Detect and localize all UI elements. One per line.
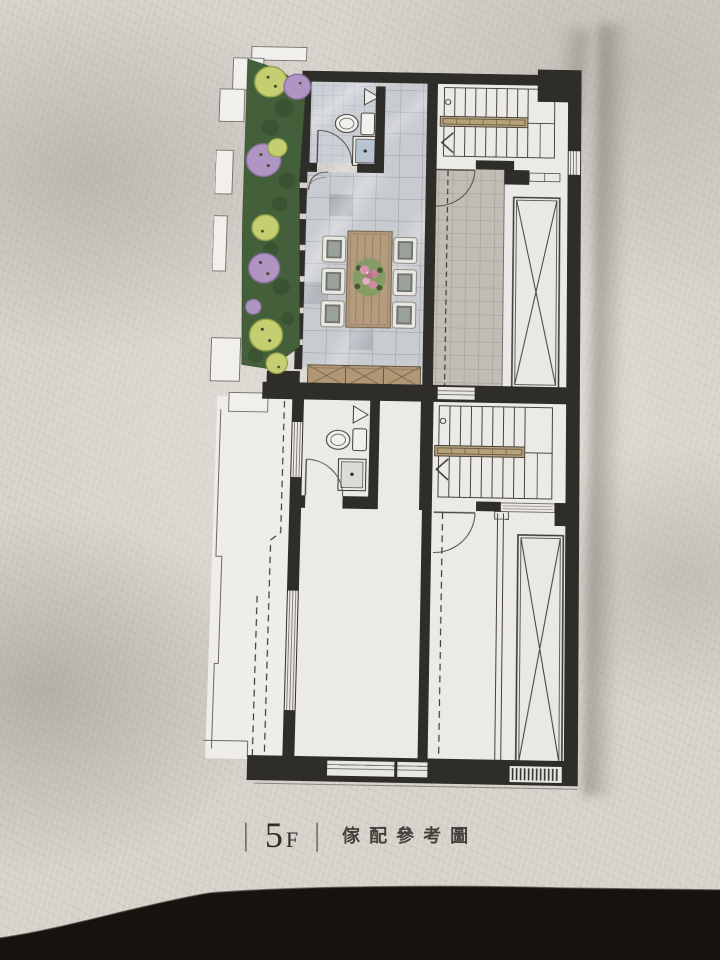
caption: | 5 F | 傢配參考圖 <box>0 812 720 858</box>
floor-plan-drawing <box>194 44 599 800</box>
floor-label: 5 F <box>265 817 298 853</box>
caption-title: 傢配參考圖 <box>342 822 477 848</box>
floor-plan-5f <box>194 44 599 800</box>
toilet <box>326 430 350 449</box>
caption-separator-left: | <box>243 819 249 851</box>
ventilation-louver <box>509 766 561 783</box>
garden-planter-strip <box>208 46 311 383</box>
dining-set <box>321 230 418 328</box>
photo-of-floorplan-brochure: { "caption": { "floor_number": "5", "flo… <box>0 0 720 960</box>
upper-elevator-shaft <box>512 197 560 388</box>
caption-separator-right: | <box>314 819 320 851</box>
toilet <box>335 114 358 132</box>
dining-chairs-right <box>392 237 417 328</box>
stair-handrail <box>440 116 528 128</box>
stair-handrail <box>435 445 525 457</box>
floor-number: 5 <box>265 817 284 853</box>
floor-suffix: F <box>286 829 298 851</box>
dining-chairs-left <box>321 236 346 327</box>
